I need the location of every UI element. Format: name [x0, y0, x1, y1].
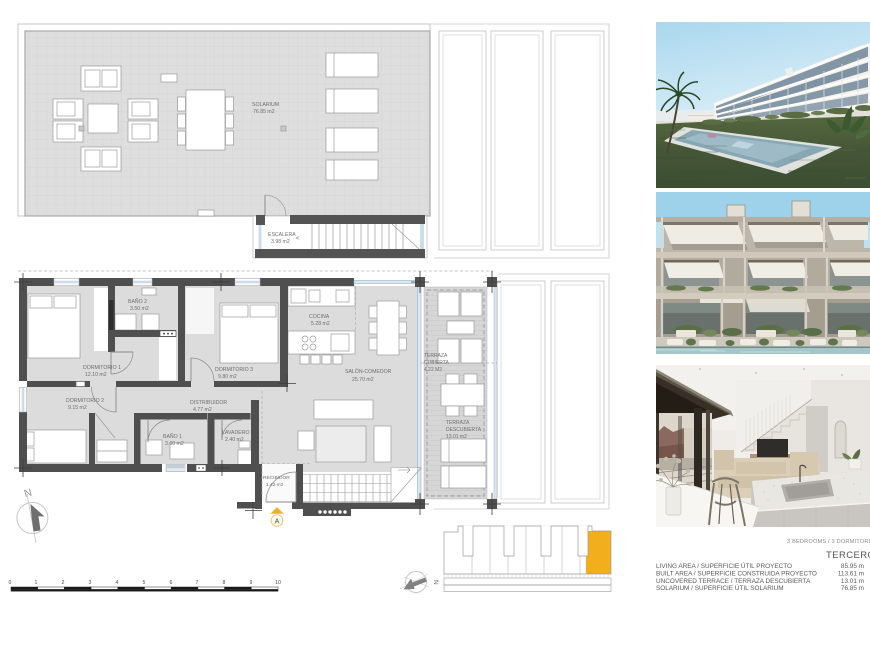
svg-text:8: 8: [223, 580, 226, 586]
svg-text:DISTRIBUIDOR: DISTRIBUIDOR: [190, 400, 227, 406]
svg-text:TERRAZA: TERRAZA: [446, 420, 470, 426]
svg-text:COCINA: COCINA: [309, 314, 330, 320]
svg-text:4: 4: [116, 580, 119, 586]
svg-text:76.85 m: 76.85 m: [841, 585, 864, 592]
svg-text:DESCUBIERTA: DESCUBIERTA: [446, 427, 482, 433]
svg-text:9.15 m2: 9.15 m2: [68, 405, 87, 411]
svg-text:3: 3: [89, 580, 92, 586]
svg-text:TERRAZA: TERRAZA: [424, 353, 448, 359]
svg-text:9: 9: [250, 580, 253, 586]
svg-text:3.60 m2: 3.60 m2: [165, 441, 184, 447]
svg-text:7: 7: [196, 580, 199, 586]
svg-text:DORMITORIO 1: DORMITORIO 1: [83, 365, 121, 371]
svg-text:ESCALERA: ESCALERA: [268, 232, 296, 238]
svg-text:3.98 m2: 3.98 m2: [271, 239, 290, 245]
svg-text:3 BEDROOMS / 3 DORMITORIOS: 3 BEDROOMS / 3 DORMITORIOS: [787, 539, 870, 545]
svg-text:5: 5: [143, 580, 146, 586]
svg-text:4.22 M2: 4.22 M2: [424, 367, 442, 373]
svg-text:N: N: [432, 580, 439, 585]
svg-text:10: 10: [275, 580, 281, 586]
svg-text:BUILT AREA / SUPERFICIE CONSTR: BUILT AREA / SUPERFICIE CONSTRUIDA PROYE…: [656, 570, 817, 577]
svg-text:76.85 m2: 76.85 m2: [253, 109, 275, 115]
svg-text:DORMITORIO 2: DORMITORIO 2: [66, 398, 104, 404]
svg-text:A: A: [274, 517, 279, 526]
svg-text:3.50 m2: 3.50 m2: [130, 306, 149, 312]
svg-text:BAÑO 1: BAÑO 1: [163, 433, 182, 440]
svg-text:1.42 m2: 1.42 m2: [266, 482, 284, 488]
svg-text:SOLARIUM / SUPERFICIE ÚTIL SOL: SOLARIUM / SUPERFICIE ÚTIL SOLARIUM: [656, 583, 784, 592]
svg-text:0: 0: [9, 580, 12, 586]
svg-text:25.70 m2: 25.70 m2: [352, 377, 374, 383]
svg-text:SALÓN-COMEDOR: SALÓN-COMEDOR: [345, 368, 392, 375]
svg-text:2: 2: [62, 580, 65, 586]
svg-text:6: 6: [170, 580, 173, 586]
svg-text:DORMITORIO 3: DORMITORIO 3: [215, 367, 253, 373]
svg-text:85.95 m: 85.95 m: [841, 563, 864, 570]
svg-text:SOLARIUM: SOLARIUM: [252, 102, 279, 108]
svg-text:TERCERO: TERCERO: [826, 550, 870, 561]
svg-text:9.80 m2: 9.80 m2: [218, 374, 237, 380]
svg-text:2.40 m2: 2.40 m2: [225, 437, 244, 443]
svg-text:13.01 m: 13.01 m: [841, 578, 864, 585]
svg-text:4.77 m2: 4.77 m2: [193, 407, 212, 413]
svg-text:13.01 m2: 13.01 m2: [446, 434, 467, 440]
svg-text:<: <: [296, 236, 300, 242]
svg-text:12.10 m2: 12.10 m2: [85, 372, 107, 378]
svg-text:5.28 m2: 5.28 m2: [311, 321, 330, 327]
svg-text:1: 1: [35, 580, 38, 586]
svg-text:RECIBIDOR: RECIBIDOR: [263, 475, 290, 481]
svg-text:113.61 m: 113.61 m: [838, 570, 864, 577]
svg-text:LIVING AREA / SUPERFICIE ÚTIL: LIVING AREA / SUPERFICIE ÚTIL PROYECTO: [656, 561, 792, 570]
svg-text:UNCOVERED TERRACE / TERRAZA DE: UNCOVERED TERRACE / TERRAZA DESCUBIERTA: [656, 578, 811, 585]
svg-text:LAVADERO: LAVADERO: [222, 430, 249, 436]
svg-text:BAÑO 2: BAÑO 2: [128, 298, 147, 305]
svg-text:CUBIERTA: CUBIERTA: [424, 360, 449, 366]
